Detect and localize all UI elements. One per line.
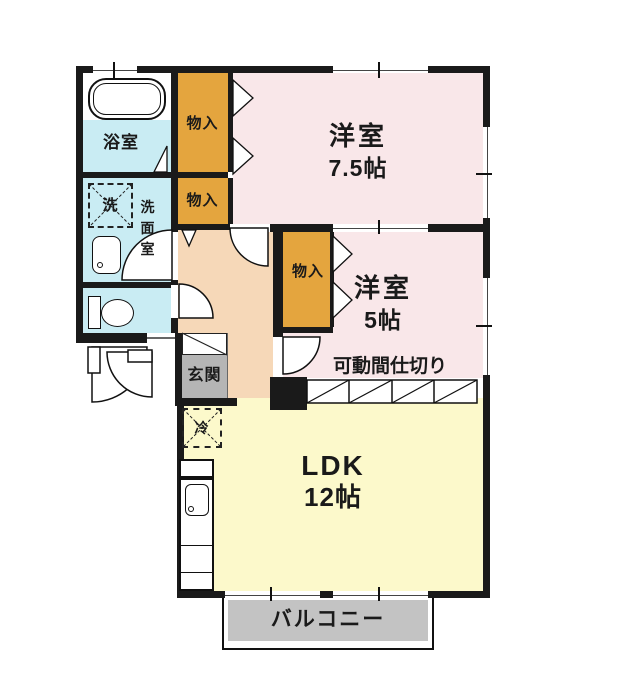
floor-plan: 浴室 洗 洗面室 物入 物入 物入 洋室 7.5帖 洋室 5帖 可動間仕切り 玄… bbox=[0, 0, 636, 698]
movable-partition-hatch bbox=[307, 380, 477, 403]
closet1-label: 物入 bbox=[177, 115, 228, 132]
washer-label: 洗 bbox=[88, 197, 133, 214]
toilet-bowl bbox=[101, 299, 134, 327]
kitchen-counter-divider2 bbox=[181, 572, 212, 573]
entrance-label: 玄関 bbox=[182, 367, 227, 385]
door-arc-bedroom1 bbox=[230, 228, 268, 266]
partition-label: 可動間仕切り bbox=[300, 356, 480, 378]
bathtub-inner bbox=[93, 83, 161, 115]
bedroom1-size: 7.5帖 bbox=[233, 155, 483, 181]
door-arc-toilet bbox=[179, 284, 213, 318]
closet3-door-icon bbox=[333, 236, 352, 272]
washroom-label: 洗面室 bbox=[139, 197, 156, 260]
closet2-door-icon bbox=[182, 230, 196, 246]
washroom-sink-faucet bbox=[97, 262, 103, 268]
kitchen-counter-divider1 bbox=[181, 545, 212, 546]
bath-door-icon bbox=[154, 146, 167, 172]
bedroom1-name: 洋室 bbox=[233, 122, 483, 152]
closet2-label: 物入 bbox=[177, 192, 228, 209]
bathroom-label: 浴室 bbox=[91, 133, 151, 153]
toilet-tank bbox=[88, 296, 101, 329]
closet1-door-icon bbox=[233, 80, 253, 116]
entry-door-leaf-1 bbox=[88, 347, 100, 373]
bedroom2-size: 5帖 bbox=[283, 307, 483, 333]
ldk-name: LDK bbox=[183, 450, 483, 482]
bedroom2-name: 洋室 bbox=[283, 274, 483, 304]
washroom-sink bbox=[92, 236, 121, 274]
shoe-cabinet-diagonal bbox=[182, 333, 227, 355]
entry-door-leaf-2 bbox=[128, 350, 152, 362]
ldk-size: 12帖 bbox=[183, 483, 483, 513]
fridge-label: 冷 bbox=[182, 420, 222, 436]
balcony-label: バルコニー bbox=[228, 608, 428, 632]
